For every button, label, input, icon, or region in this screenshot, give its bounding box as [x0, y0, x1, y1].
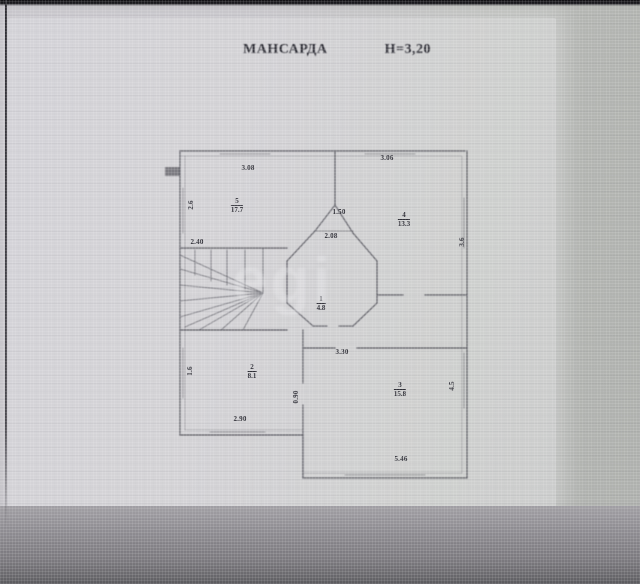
drawing-title: МАНСАРДА Н=3,20	[243, 42, 431, 58]
screen-left-edge	[5, 0, 7, 530]
photographed-screen: МАНСАРДА Н=3,20	[0, 0, 640, 584]
floor-height-label: Н=3,20	[385, 42, 431, 58]
photo-bottom-band: Домклик	[0, 506, 640, 584]
screen-top-edge	[0, 0, 640, 6]
chimney-block	[165, 167, 180, 176]
center-watermark: egi	[232, 248, 333, 312]
floor-level-label: МАНСАРДА	[243, 42, 328, 58]
